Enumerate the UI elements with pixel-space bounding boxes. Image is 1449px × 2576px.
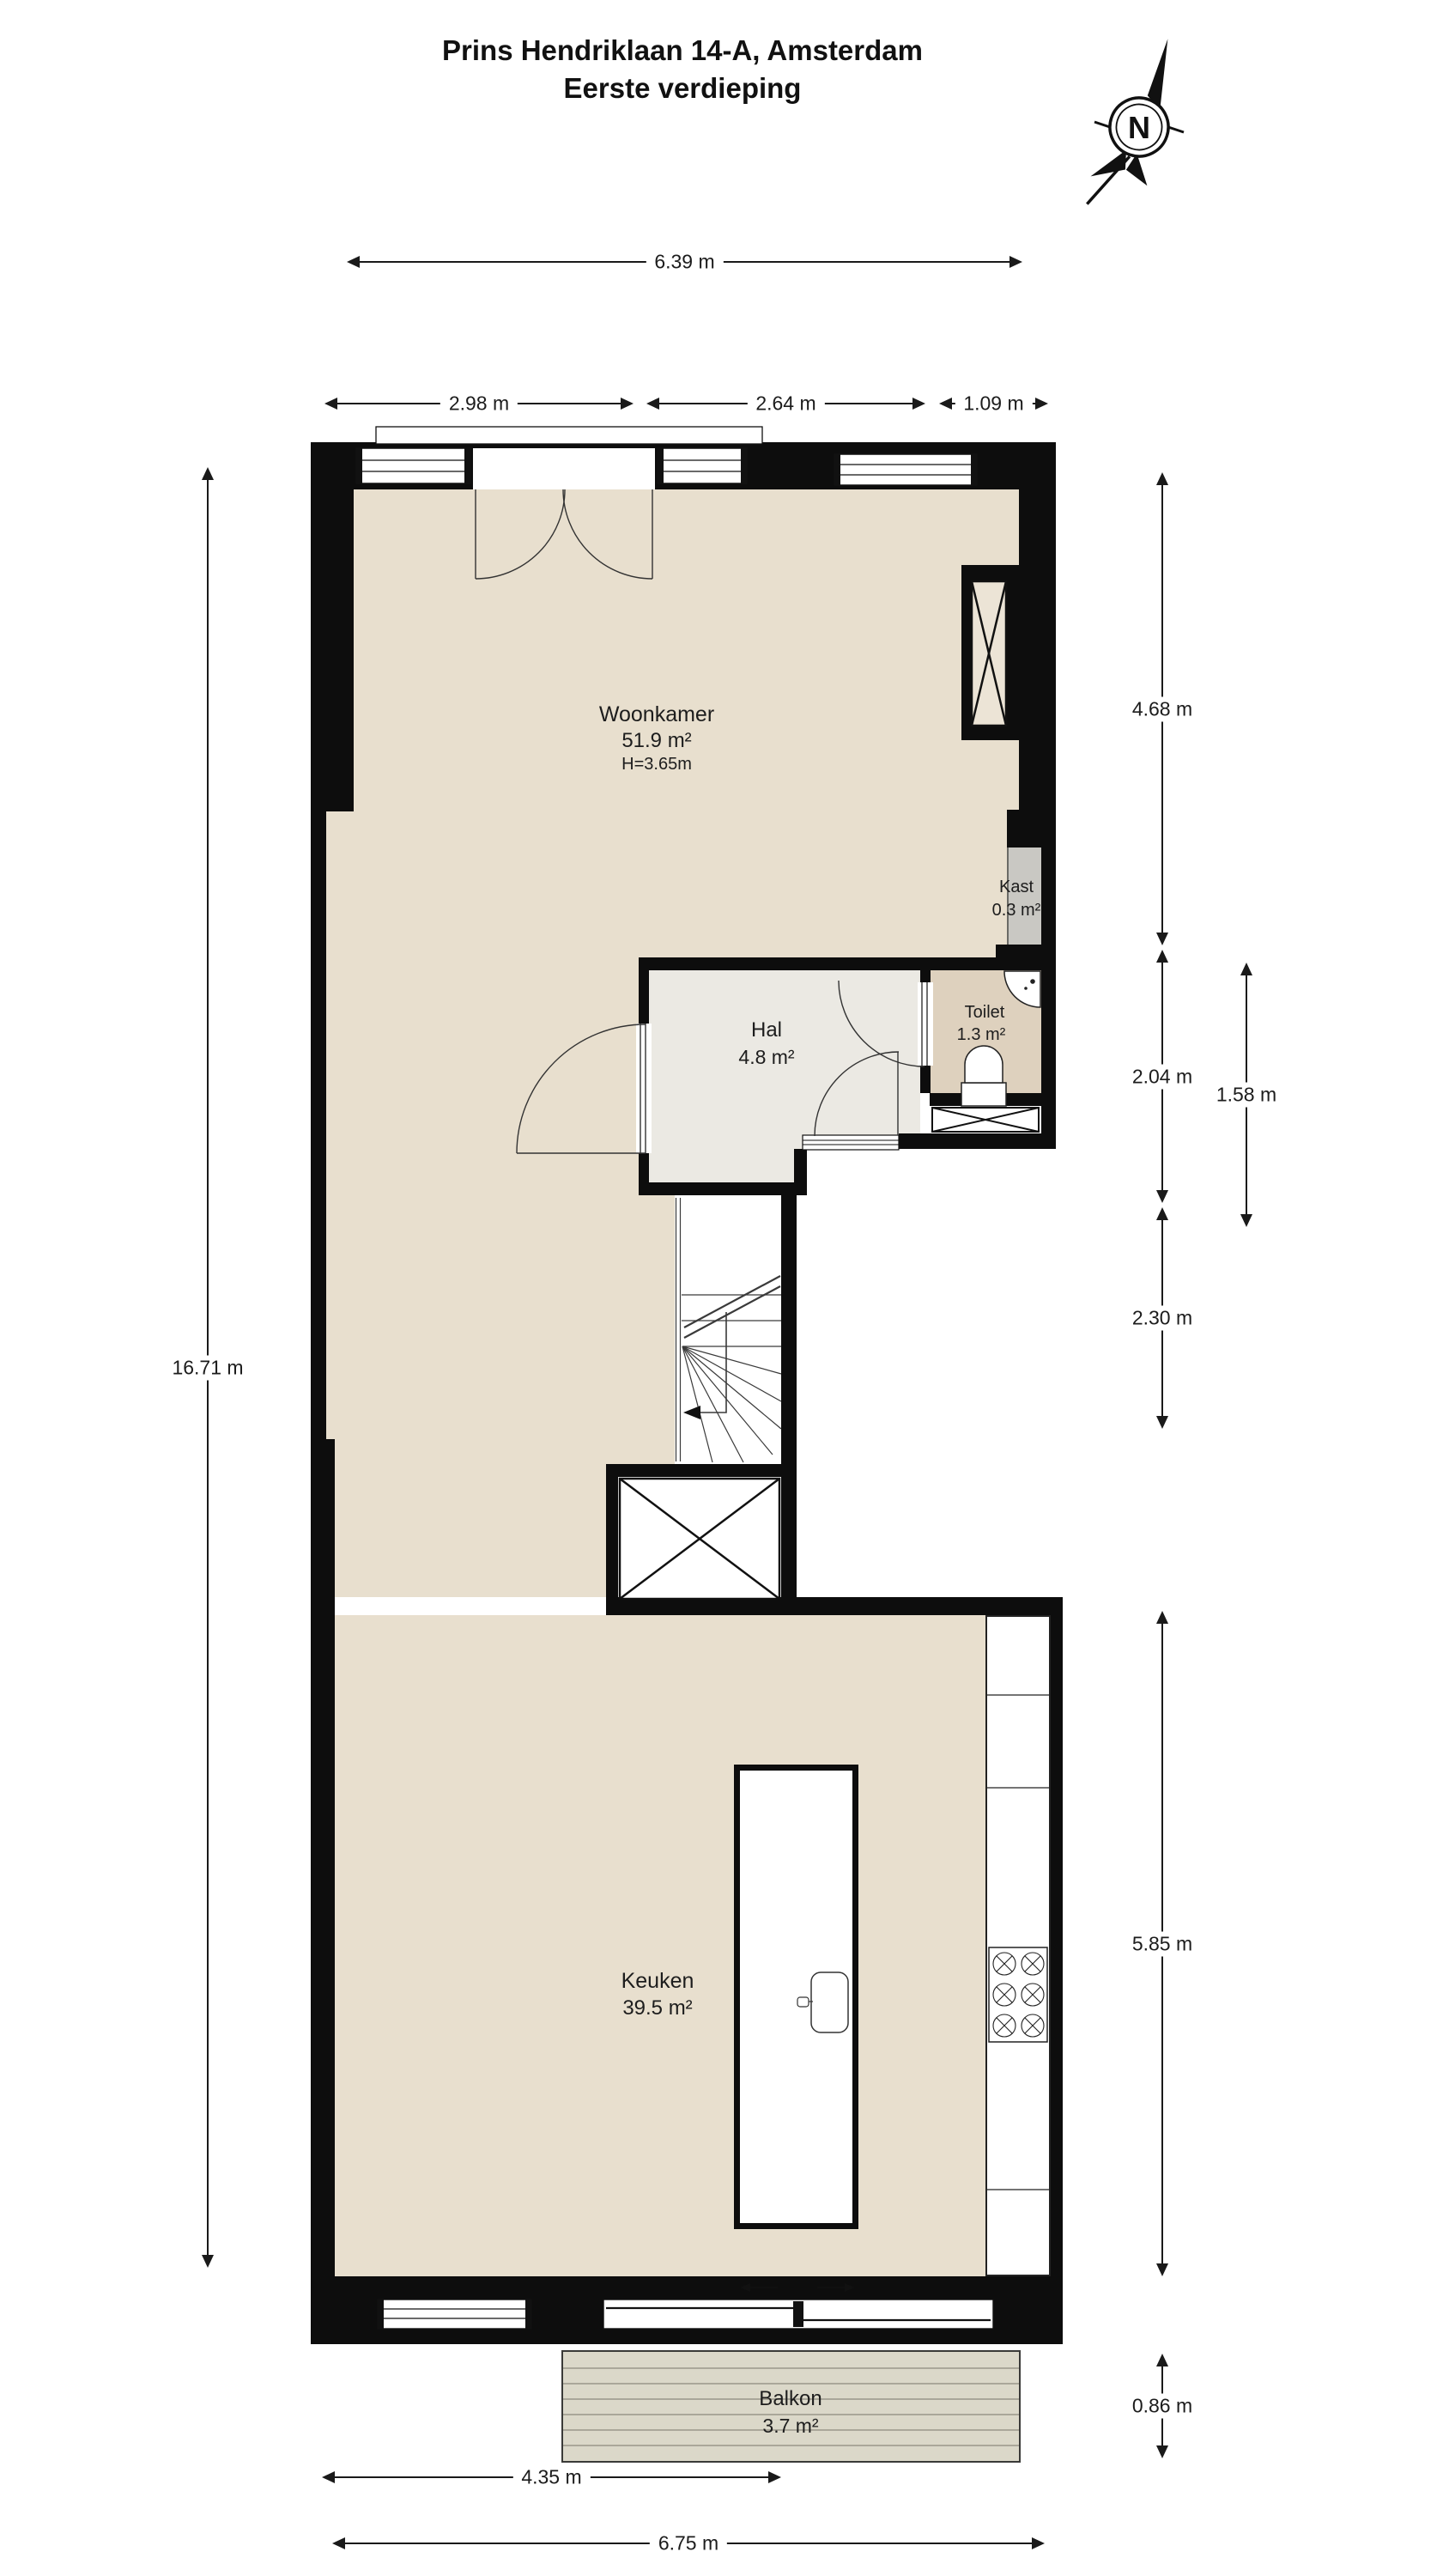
label-toilet: Toilet — [965, 1003, 1005, 1023]
dim-bottom-inner: 4.35 m — [323, 2471, 780, 2483]
sliding-door — [603, 2283, 993, 2329]
toilet-fixture — [961, 1046, 1006, 1106]
dim-left-total: 16.71 m — [202, 468, 214, 2267]
dim-right-upper: 4.68 m — [1156, 473, 1168, 945]
door-hal-west — [517, 1024, 652, 1153]
compass-icon: N — [1070, 25, 1210, 225]
label-keuken: Keuken — [621, 1969, 694, 1994]
dim-top-left: 2.98 m — [325, 398, 633, 410]
label-hal: Hal — [751, 1018, 782, 1042]
dim-right-hal: 2.04 m — [1156, 951, 1168, 1202]
stairs — [676, 1198, 782, 1462]
window-top-left — [356, 448, 470, 483]
window-kitchen — [378, 2300, 531, 2329]
stove — [989, 1947, 1047, 2042]
island-sink — [797, 1972, 848, 2032]
dim-right-balcony: 0.86 m — [1156, 2354, 1168, 2458]
label-balkon-area: 3.7 m² — [762, 2415, 818, 2438]
dim-bottom-total: 6.75 m — [333, 2537, 1044, 2549]
label-toilet-area: 1.3 m² — [957, 1025, 1006, 1045]
label-balkon: Balkon — [759, 2387, 822, 2411]
stairs-down-arrow-icon — [683, 1406, 700, 1419]
label-hal-area: 4.8 m² — [738, 1046, 794, 1069]
label-woonkamer-area: 51.9 m² — [621, 729, 691, 753]
label-woonkamer-height: H=3.65m — [621, 755, 692, 775]
stair-shaft — [620, 1479, 779, 1599]
compass-north-label: N — [1128, 110, 1150, 145]
slide-arrow-right-icon — [817, 2283, 855, 2292]
label-keuken-area: 39.5 m² — [622, 1996, 692, 2020]
door-hal-east — [839, 981, 933, 1066]
kitchen-counter-segments — [987, 1695, 1049, 2190]
door-hal-south — [803, 1052, 899, 1150]
label-kast-area: 0.3 m² — [992, 901, 1041, 920]
chimney-shaft — [972, 581, 1006, 726]
window-top-mid — [658, 448, 747, 483]
label-kast: Kast — [999, 878, 1034, 897]
toilet-shaft — [932, 1108, 1039, 1132]
label-woonkamer: Woonkamer — [599, 702, 714, 727]
dim-top-mid: 2.64 m — [647, 398, 925, 410]
window-sill-outer — [376, 427, 762, 444]
plan-graphics: N — [0, 0, 1449, 2576]
window-top-right — [834, 454, 977, 485]
corner-sink — [1004, 971, 1040, 1007]
dim-right-kitchen: 5.85 m — [1156, 1612, 1168, 2275]
dim-right-stairs: 2.30 m — [1156, 1208, 1168, 1428]
dim-right-toilet: 1.58 m — [1240, 963, 1252, 1226]
french-doors — [473, 448, 655, 579]
dim-top-total: 6.39 m — [348, 256, 1022, 268]
floorplan-page: Prins Hendriklaan 14-A, Amsterdam Eerste… — [0, 0, 1449, 2576]
dim-top-right: 1.09 m — [940, 398, 1047, 410]
slide-arrow-left-icon — [740, 2283, 778, 2292]
